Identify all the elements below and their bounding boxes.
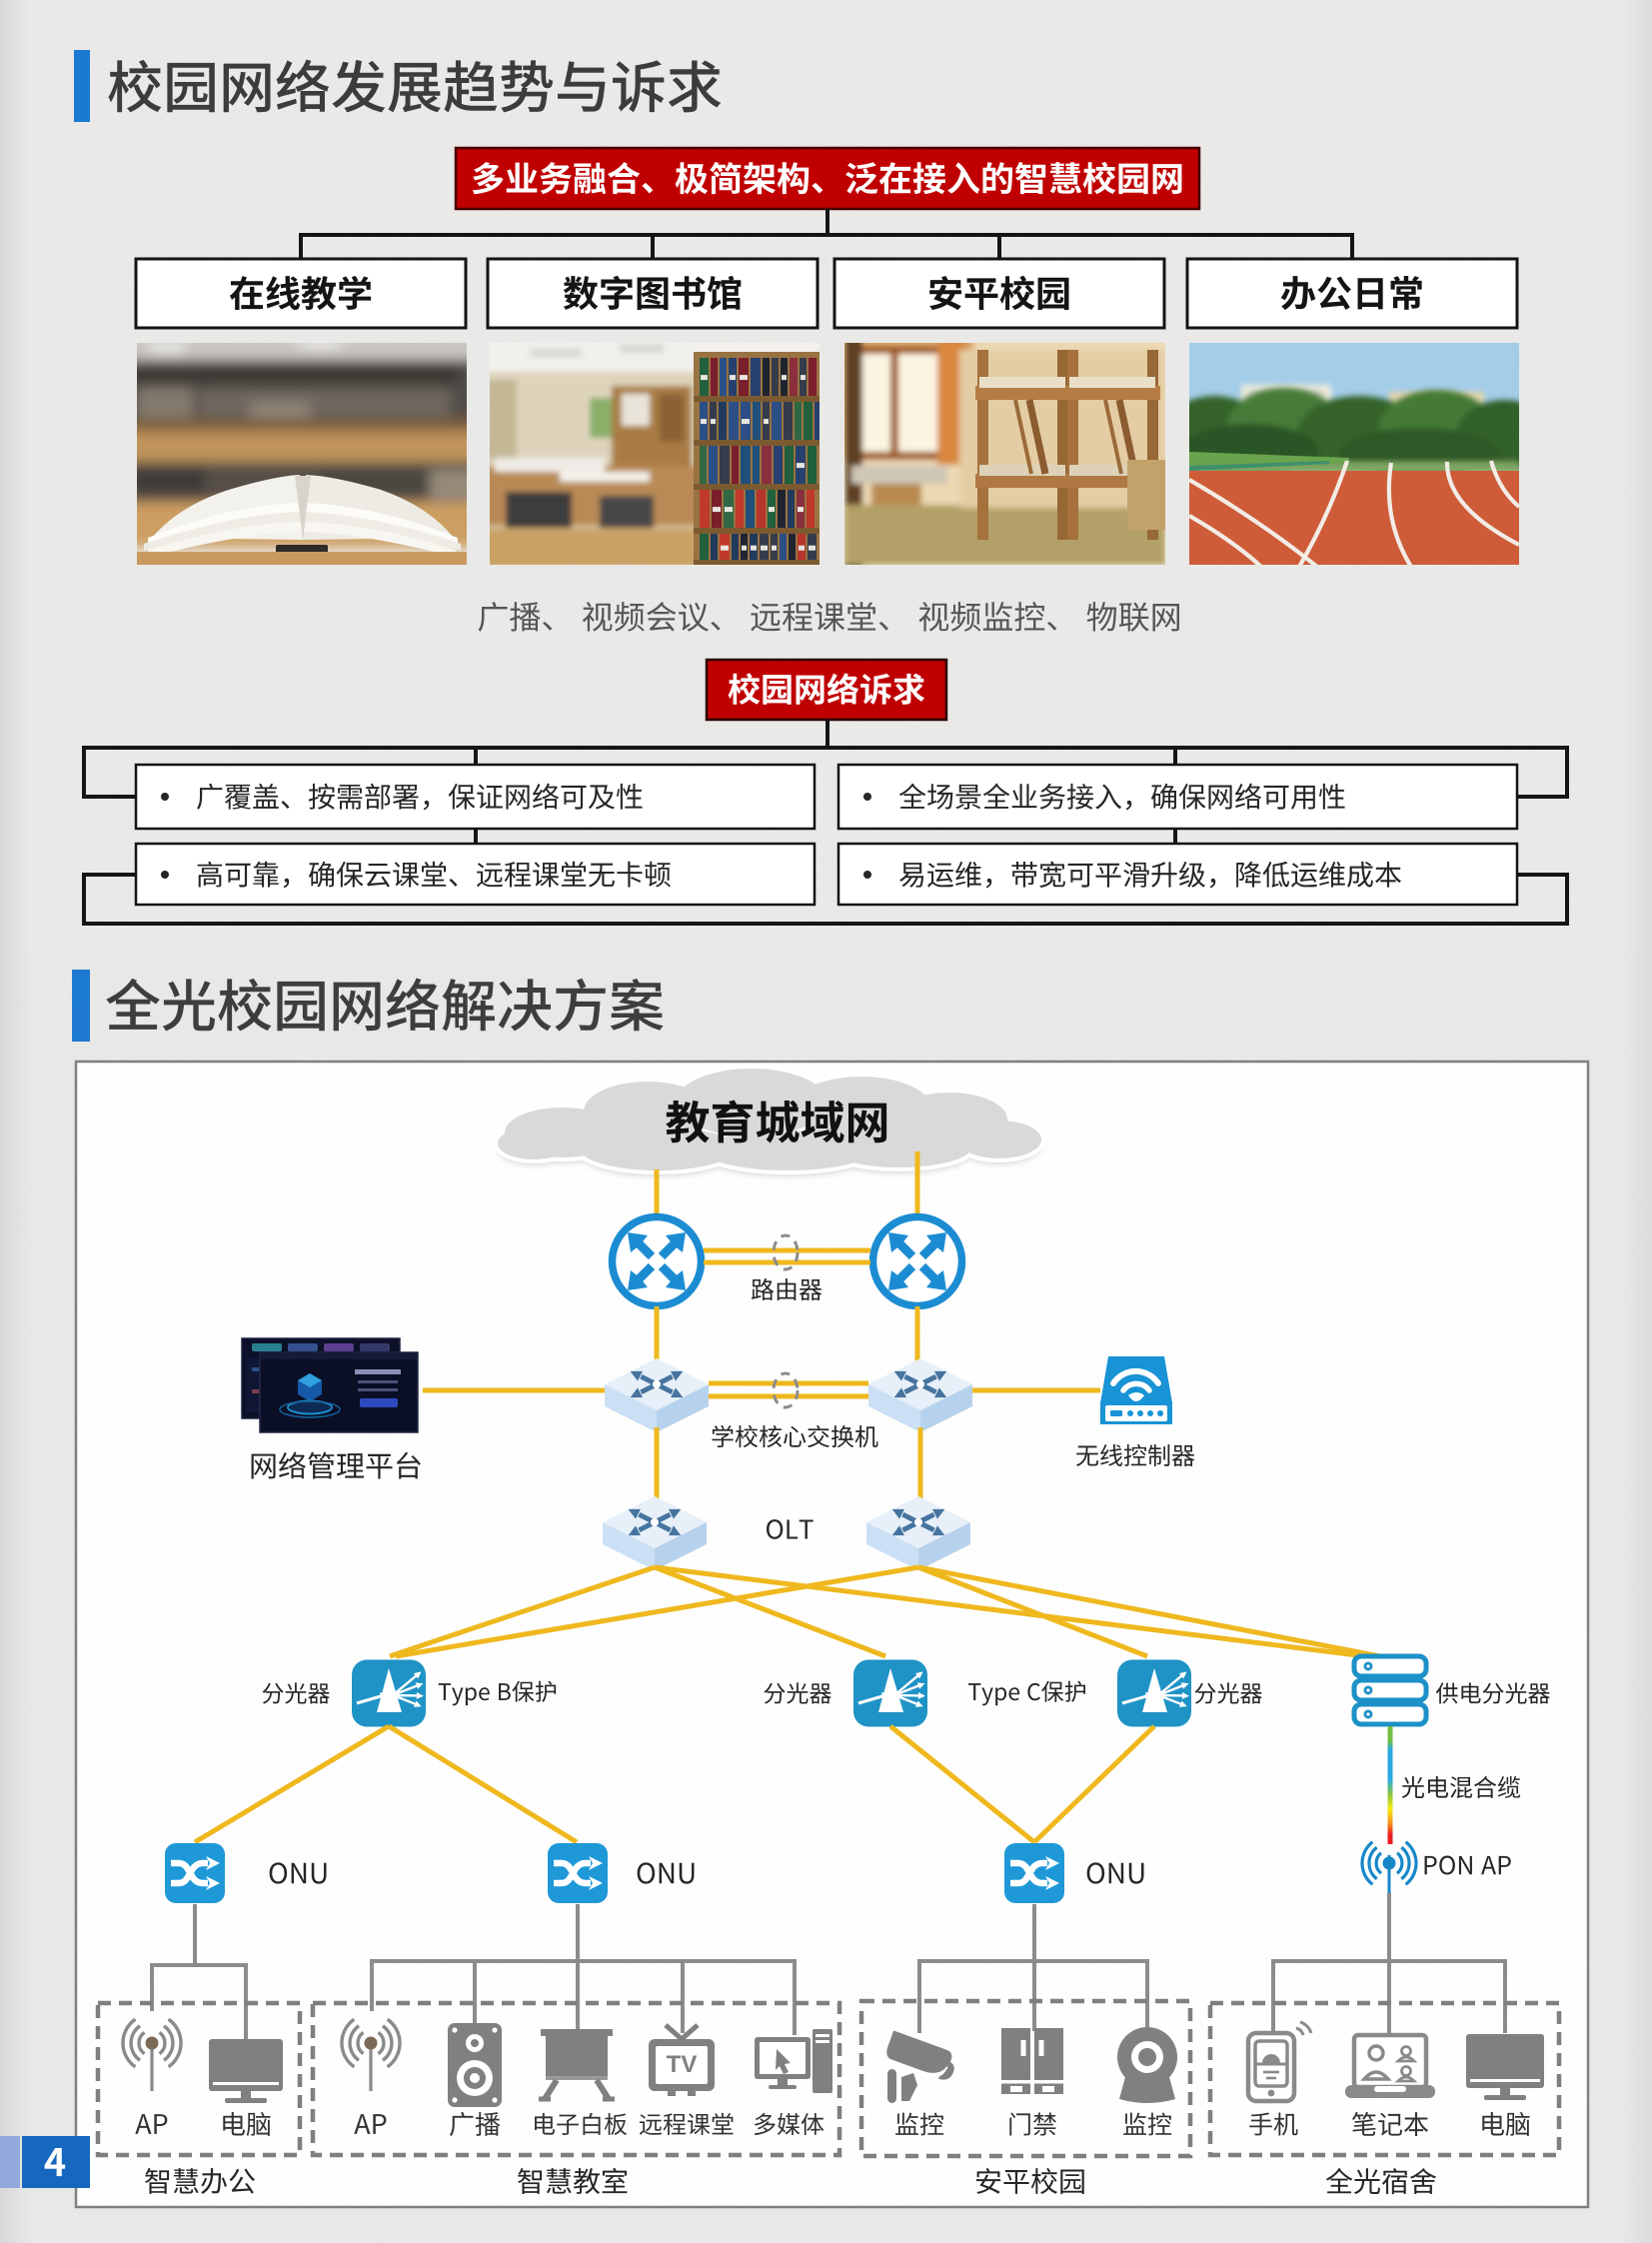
svg-text:TV: TV bbox=[667, 2051, 698, 2078]
